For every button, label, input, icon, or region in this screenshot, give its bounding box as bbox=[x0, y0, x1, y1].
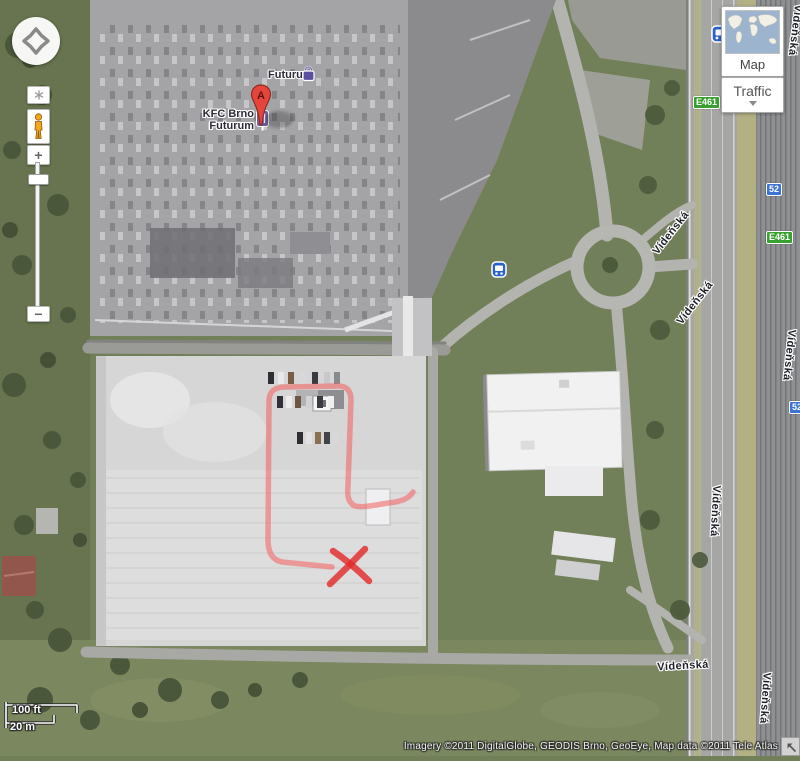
asterisk-icon bbox=[34, 90, 44, 100]
world-map-thumbnail[interactable] bbox=[725, 10, 780, 54]
poi-label-line2: Futurum bbox=[196, 120, 254, 132]
zoom-out-label: − bbox=[34, 307, 42, 321]
scale-metric-label: 20 m bbox=[10, 721, 35, 733]
map-button-label: Map bbox=[722, 54, 783, 76]
gray-shack bbox=[36, 508, 58, 534]
map-canvas[interactable] bbox=[0, 0, 800, 761]
scale-bar: 100 ft 20 m bbox=[0, 692, 95, 742]
attribution-text: Imagery ©2011 DigitalGlobe, GEODIS Brno,… bbox=[404, 741, 778, 752]
shopping-bag-icon[interactable] bbox=[301, 65, 316, 87]
route-badge-e461: E461 bbox=[766, 231, 793, 244]
grass-median bbox=[737, 0, 756, 756]
satellite-imagery bbox=[0, 0, 800, 756]
white-building bbox=[483, 371, 622, 471]
poi-label-kfc[interactable]: KFC Brno Futurum bbox=[196, 108, 254, 132]
scale-imperial-label: 100 ft bbox=[12, 704, 41, 716]
transit-stop-icon[interactable] bbox=[491, 261, 507, 283]
google-maps-satellite-view: { "map_controls": { "zoom_in": "+", "zoo… bbox=[0, 0, 800, 756]
marker-a[interactable]: A bbox=[250, 84, 272, 133]
arrow-up-left-icon bbox=[785, 741, 797, 753]
traffic-button[interactable]: Traffic bbox=[721, 77, 784, 113]
traffic-button-label: Traffic bbox=[733, 84, 771, 99]
poi-label-line1: KFC Brno bbox=[196, 108, 254, 120]
pan-down-icon[interactable] bbox=[31, 47, 41, 53]
zoom-in-label: + bbox=[34, 148, 42, 162]
route-badge-52: 52 bbox=[789, 401, 800, 414]
pan-control[interactable] bbox=[12, 17, 60, 65]
zoom-slider-handle[interactable] bbox=[28, 174, 49, 185]
parking-lot bbox=[96, 356, 426, 646]
pan-left-icon[interactable] bbox=[24, 36, 30, 46]
route-badge-e461: E461 bbox=[693, 96, 720, 109]
marker-letter: A bbox=[257, 90, 265, 102]
pan-up-icon[interactable] bbox=[31, 29, 41, 35]
zoom-out-button[interactable]: − bbox=[27, 306, 50, 322]
pan-right-icon[interactable] bbox=[42, 36, 48, 46]
pegman-streetview-button[interactable] bbox=[27, 109, 50, 144]
route-badge-52: 52 bbox=[766, 183, 782, 196]
chevron-down-icon bbox=[749, 101, 757, 106]
pan-back-button[interactable] bbox=[781, 737, 800, 756]
reset-view-button[interactable] bbox=[27, 86, 50, 104]
railway bbox=[756, 0, 800, 756]
map-type-button[interactable]: Map bbox=[721, 6, 784, 77]
pegman-icon bbox=[32, 113, 45, 140]
